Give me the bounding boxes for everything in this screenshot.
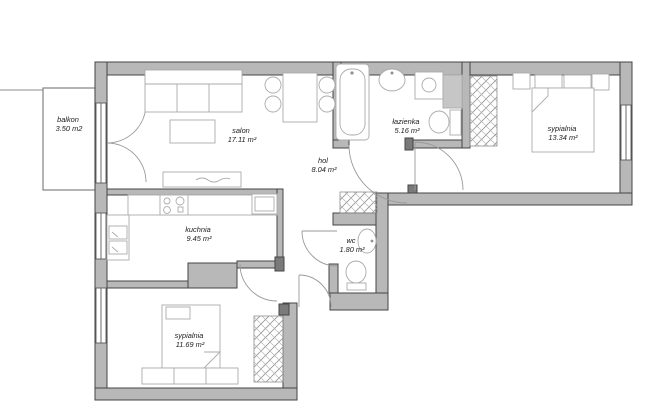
bedroom2-dresser [142, 368, 238, 384]
bedroom1-window [621, 105, 631, 160]
balcony-door-window [96, 103, 106, 183]
kitchen-window [96, 213, 106, 259]
wall-bottom-left [95, 388, 297, 400]
wall-wc-top [333, 213, 376, 225]
entrance-door [415, 142, 463, 190]
stove [160, 195, 188, 215]
wc-door [302, 231, 337, 266]
room-labels: balkon 3.50 m2 salon 17.11 m² hol 8.04 m… [56, 115, 579, 349]
bedroom1-wardrobe [470, 76, 497, 146]
bath-cabinet [443, 75, 462, 108]
wall-jamb-kitchen [275, 257, 284, 271]
wall-jamb-bath [405, 138, 413, 150]
wall-wc-right [376, 193, 388, 310]
bath-toilet [429, 110, 461, 135]
label-kuchnia: kuchnia 9.45 m² [185, 225, 213, 243]
wall-bath-right [462, 62, 470, 148]
bath-sink [379, 69, 405, 91]
fridge [252, 194, 277, 214]
wall-wc-bottom [330, 293, 388, 310]
bedroom2-window [96, 288, 106, 343]
label-sypialnia2: sypialnia 11.69 m² [175, 331, 206, 349]
wc-toilet [346, 261, 366, 290]
wall-jamb-bedroom2 [279, 304, 289, 315]
wall-bedroom2-top [107, 281, 188, 288]
label-balkon: balkon 3.50 m2 [56, 115, 83, 133]
floor-plan-canvas: balkon 3.50 m2 salon 17.11 m² hol 8.04 m… [0, 0, 655, 414]
floor-plan: balkon 3.50 m2 salon 17.11 m² hol 8.04 m… [0, 0, 655, 414]
kitchen-side-counter [107, 215, 129, 260]
wall-kitchen-bottom [237, 261, 277, 268]
dining-set [265, 73, 335, 122]
tv-stand [163, 172, 241, 187]
wall-bedroom2-right [283, 303, 297, 400]
wall-kitchen-right [277, 189, 283, 263]
bedroom2-door [299, 275, 331, 307]
label-hol: hol 8.04 m² [311, 156, 337, 174]
wall-jamb-entrance [408, 185, 417, 193]
label-salon: salon 17.11 m² [228, 126, 257, 144]
label-sypialnia1: sypialnia 13.34 m² [548, 124, 579, 142]
label-lazienka: łazienka 5.16 m² [392, 117, 421, 135]
coffee-table [170, 120, 215, 143]
balcony-door [107, 104, 146, 182]
bedroom2-wardrobe [254, 316, 283, 382]
wall-bottom-right [376, 193, 632, 205]
wall-bath-bottom-stub [333, 140, 349, 148]
balcony-outline [0, 88, 95, 190]
kitchen-door [240, 264, 277, 301]
wall-kitchen-block [188, 263, 237, 288]
bathtub [336, 64, 369, 140]
washing-machine [415, 72, 443, 99]
hall-wardrobe [340, 192, 377, 213]
sofa [145, 70, 242, 112]
wall-wc-left [329, 264, 338, 293]
